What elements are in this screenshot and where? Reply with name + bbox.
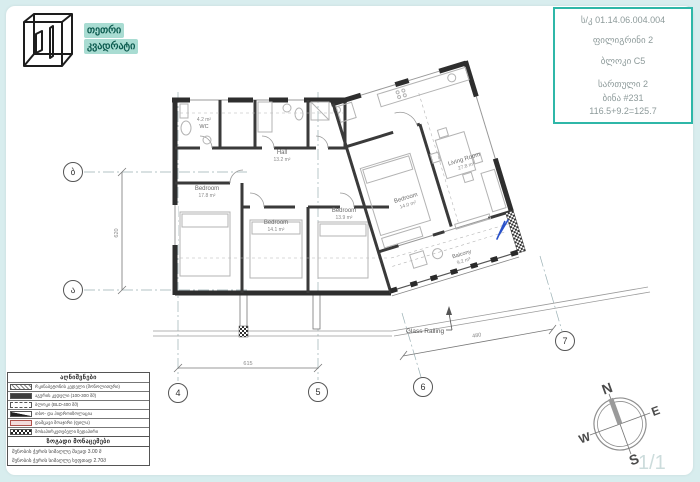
- legend-symbol-brick: [10, 393, 32, 399]
- wall-stub: [313, 293, 320, 329]
- column-hatch: [239, 326, 248, 337]
- legend-title: აღნიშვნები: [8, 373, 149, 382]
- grid-column-4: 4: [175, 388, 180, 398]
- room-label-bedroom3: Bedroom: [332, 208, 356, 214]
- room-area-bedroom2: 14.1 m²: [268, 227, 285, 233]
- legend-symbol-insulation: [10, 411, 32, 417]
- column-hatch: [506, 211, 526, 254]
- legend-row: თბო- და ჰიდროიზოლაცია: [8, 409, 149, 418]
- legend-symbol-block: [10, 402, 32, 408]
- legend-table: აღნიშვნები რკინაბეტონის კედელი (მონოლითუ…: [7, 372, 150, 437]
- glass-railing-callout: Glass Railing: [406, 306, 452, 335]
- compass-e: E: [650, 403, 662, 419]
- pen-mark: [497, 220, 508, 239]
- legend-symbol-railing: [10, 420, 32, 426]
- dimensions: [118, 168, 556, 372]
- grid-column-7: 7: [562, 336, 567, 346]
- grid-column-6: 6: [420, 382, 425, 392]
- legend-label: დამცავი მოაჯირი (ფილა): [35, 420, 90, 426]
- grid-column-5: 5: [315, 387, 320, 397]
- legend-label: რკინაბეტონის კედელი (მონოლითური): [35, 384, 120, 390]
- legend-row: აგურის კედელი (100-300 მმ): [8, 391, 149, 400]
- grid-row-a: ა: [71, 285, 76, 295]
- legend-row: მოსაპირკეთებელი ზედაპირი: [8, 427, 149, 436]
- legend-label: აგურის კედელი (100-300 მმ): [35, 393, 96, 399]
- room-label-bedroom1: Bedroom: [195, 186, 219, 192]
- notes-table: ზოგადი მონაცემები შენობის ჭერის სიმაღლე …: [7, 436, 150, 466]
- rotated-wing: Bedroom 14.0 m² Living Room 27.8 m² Balc…: [331, 61, 527, 297]
- dim-a-b: 620: [114, 228, 120, 237]
- room-area-bedroom3: 13.9 m²: [336, 215, 353, 221]
- room-label-wc: WC: [199, 124, 208, 130]
- dim-6-7: 480: [472, 332, 482, 340]
- legend-label: თბო- და ჰიდროიზოლაცია: [35, 411, 92, 417]
- room-area-wc: 4.2 m²: [197, 117, 212, 123]
- glass-railing-label: Glass Railing: [406, 328, 445, 335]
- room-label-bedroom2: Bedroom: [264, 220, 288, 226]
- wall-stub: [240, 293, 247, 329]
- dimension-labels: 615 480 620: [114, 228, 482, 367]
- legend-label: მოსაპირკეთებელი ზედაპირი: [35, 429, 98, 435]
- room-label-hall: Hall: [277, 150, 287, 156]
- legend-row: რკინაბეტონის კედელი (მონოლითური): [8, 382, 149, 391]
- legend-symbol-concrete: [10, 384, 32, 390]
- compass-w: W: [577, 429, 593, 446]
- compass-n: N: [600, 379, 615, 397]
- legend-row: ბლოკი (BLD-400 მმ): [8, 400, 149, 409]
- legend-label: ბლოკი (BLD-400 მმ): [35, 402, 78, 408]
- room-area-bedroom1: 17.8 m²: [199, 193, 216, 199]
- page-number: 1/1: [638, 452, 666, 475]
- legend-symbol-finish: [10, 429, 32, 435]
- note-line: შენობის ჭერის სიმაღლე შავად 3.00 მ: [8, 447, 149, 456]
- legend-row: დამცავი მოაჯირი (ფილა): [8, 418, 149, 427]
- notes-title: ზოგადი მონაცემები: [8, 437, 149, 447]
- note-line: შენობის ჭერის სიმაღლე სუფთად 2.70მ: [8, 456, 149, 465]
- grid-row-b: ბ: [71, 167, 76, 177]
- room-area-hall: 13.2 m²: [274, 157, 291, 163]
- dim-4-5: 615: [243, 361, 252, 367]
